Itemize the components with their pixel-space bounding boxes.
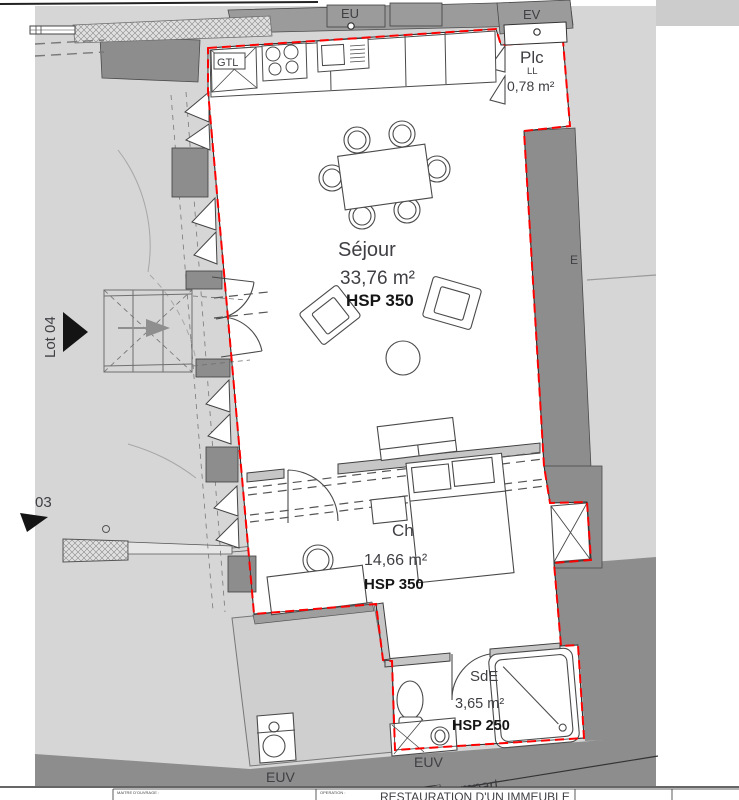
label-ch: Ch	[392, 521, 414, 540]
ev-drain	[504, 22, 567, 45]
label-e: E	[570, 253, 578, 267]
floor-plan-drawing: EU EV GTL Plc LL 0,78 m² Séjour 33,76 m²…	[0, 0, 739, 800]
label-sde-hsp: HSP 250	[452, 718, 510, 734]
titleblock-operation-value: RESTAURATION D'UN IMMEUBLE	[380, 790, 570, 800]
label-sejour: Séjour	[338, 239, 396, 261]
label-plc-area: 0,78 m²	[507, 78, 555, 94]
label-ch-area: 14,66 m²	[364, 552, 428, 569]
nightstand	[371, 496, 407, 523]
titleblock-operation-label: OPERATION :	[320, 790, 345, 795]
titleblock-client-label: MAITRE D'OUVRAGE :	[117, 790, 159, 795]
label-lot03: 03	[35, 494, 52, 511]
label-plc: Plc	[520, 48, 544, 67]
side-table	[386, 341, 420, 375]
label-ch-hsp: HSP 350	[364, 576, 424, 593]
label-ev: EV	[523, 7, 541, 22]
stove-icon	[262, 43, 307, 81]
title-block: MAITRE D'OUVRAGE : OPERATION : RESTAURAT…	[0, 787, 739, 800]
label-sejour-area: 33,76 m²	[340, 268, 415, 289]
label-sde-area: 3,65 m²	[455, 696, 504, 712]
washbasin	[390, 718, 457, 756]
neighbor-volume	[232, 604, 394, 766]
gtl-box	[211, 47, 257, 92]
sink-icon	[317, 38, 369, 72]
dining-table	[338, 144, 433, 210]
balcony-hatch	[63, 539, 128, 562]
label-lot04: Lot 04	[42, 316, 59, 358]
label-sejour-hsp: HSP 350	[346, 291, 414, 310]
duct-box	[551, 503, 590, 562]
label-eu: EU	[341, 6, 359, 21]
euv-drain-box	[257, 713, 296, 763]
label-sde: SdE	[470, 668, 498, 685]
label-plc-ll: LL	[527, 66, 538, 77]
label-euv-right: EUV	[414, 754, 443, 770]
label-gtl: GTL	[217, 57, 238, 69]
label-euv-left: EUV	[266, 769, 295, 785]
floor-plan-page: EU EV GTL Plc LL 0,78 m² Séjour 33,76 m²…	[0, 0, 739, 800]
